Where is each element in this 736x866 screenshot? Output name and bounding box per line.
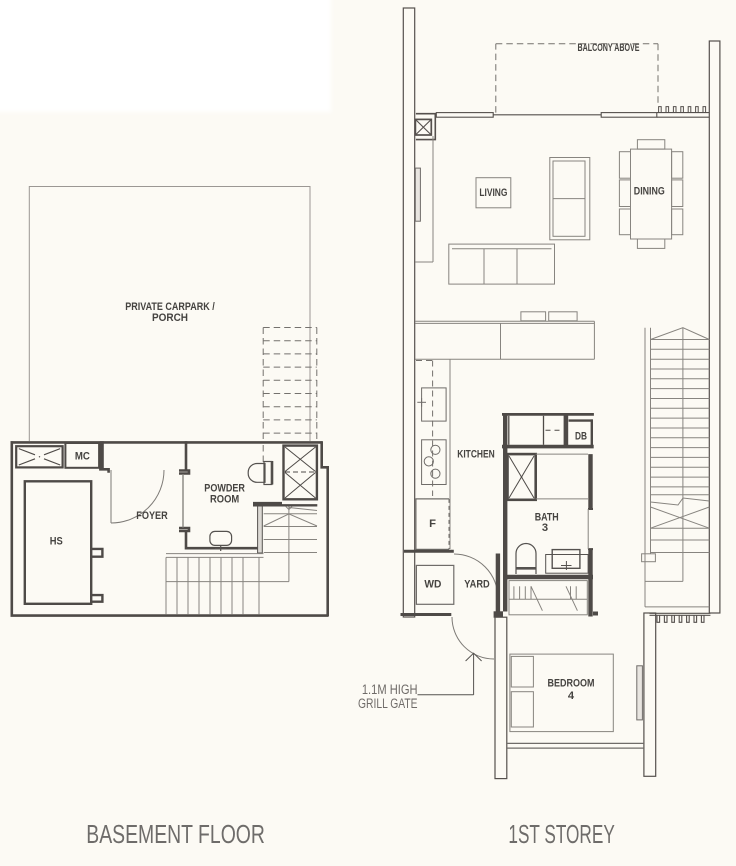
svg-text:DB: DB (575, 431, 587, 443)
svg-text:KITCHEN: KITCHEN (457, 449, 495, 461)
svg-text:DINING: DINING (634, 185, 665, 197)
svg-text:PORCH: PORCH (152, 312, 188, 324)
svg-text:LIVING: LIVING (479, 187, 507, 199)
svg-text:MC: MC (75, 451, 90, 463)
svg-text:BASEMENT FLOOR: BASEMENT FLOOR (86, 821, 265, 849)
svg-text:BEDROOM: BEDROOM (548, 678, 595, 690)
svg-text:1.1M HIGH: 1.1M HIGH (362, 682, 418, 697)
svg-text:HS: HS (50, 536, 63, 548)
svg-text:ROOM: ROOM (210, 493, 239, 505)
svg-text:F: F (429, 518, 436, 530)
svg-text:YARD: YARD (464, 579, 489, 591)
svg-text:4: 4 (568, 690, 575, 702)
svg-text:BALCONY ABOVE: BALCONY ABOVE (578, 42, 640, 54)
svg-text:GRILL GATE: GRILL GATE (358, 696, 418, 711)
svg-text:FOYER: FOYER (136, 510, 168, 522)
svg-text:1ST STOREY: 1ST STOREY (508, 821, 614, 849)
svg-text:WD: WD (424, 579, 441, 591)
svg-text:3: 3 (542, 522, 548, 534)
